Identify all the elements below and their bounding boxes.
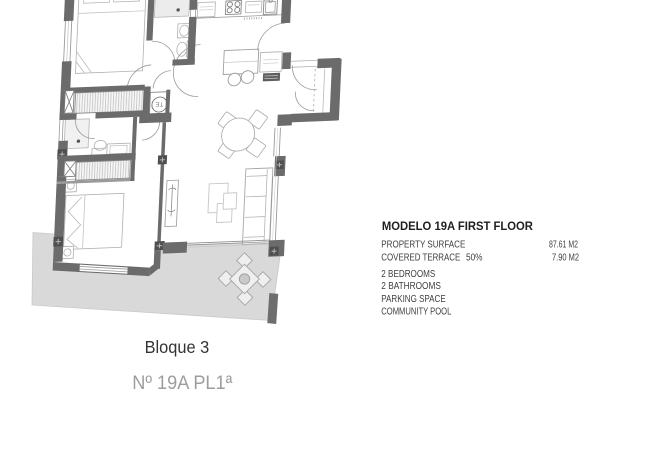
svg-text:TE: TE bbox=[155, 100, 163, 106]
svg-text:Nº 19A PL1ª: Nº 19A PL1ª bbox=[132, 372, 233, 394]
svg-text:COVERED TERRACE: COVERED TERRACE bbox=[381, 252, 460, 263]
svg-text:50%: 50% bbox=[466, 252, 483, 263]
svg-text:PARKING SPACE: PARKING SPACE bbox=[381, 294, 446, 305]
svg-text:2 BEDROOMS: 2 BEDROOMS bbox=[381, 269, 435, 280]
svg-text:COMMUNITY POOL: COMMUNITY POOL bbox=[381, 307, 451, 318]
svg-text:Bloque 3: Bloque 3 bbox=[145, 337, 210, 357]
svg-text:PROPERTY SURFACE: PROPERTY SURFACE bbox=[381, 239, 465, 250]
svg-text:2 BATHROOMS: 2 BATHROOMS bbox=[381, 281, 441, 292]
svg-text:87.61 M2: 87.61 M2 bbox=[549, 239, 578, 250]
svg-text:7.90 M2: 7.90 M2 bbox=[552, 252, 579, 263]
svg-text:MODELO 19A FIRST FLOOR: MODELO 19A FIRST FLOOR bbox=[382, 219, 533, 233]
